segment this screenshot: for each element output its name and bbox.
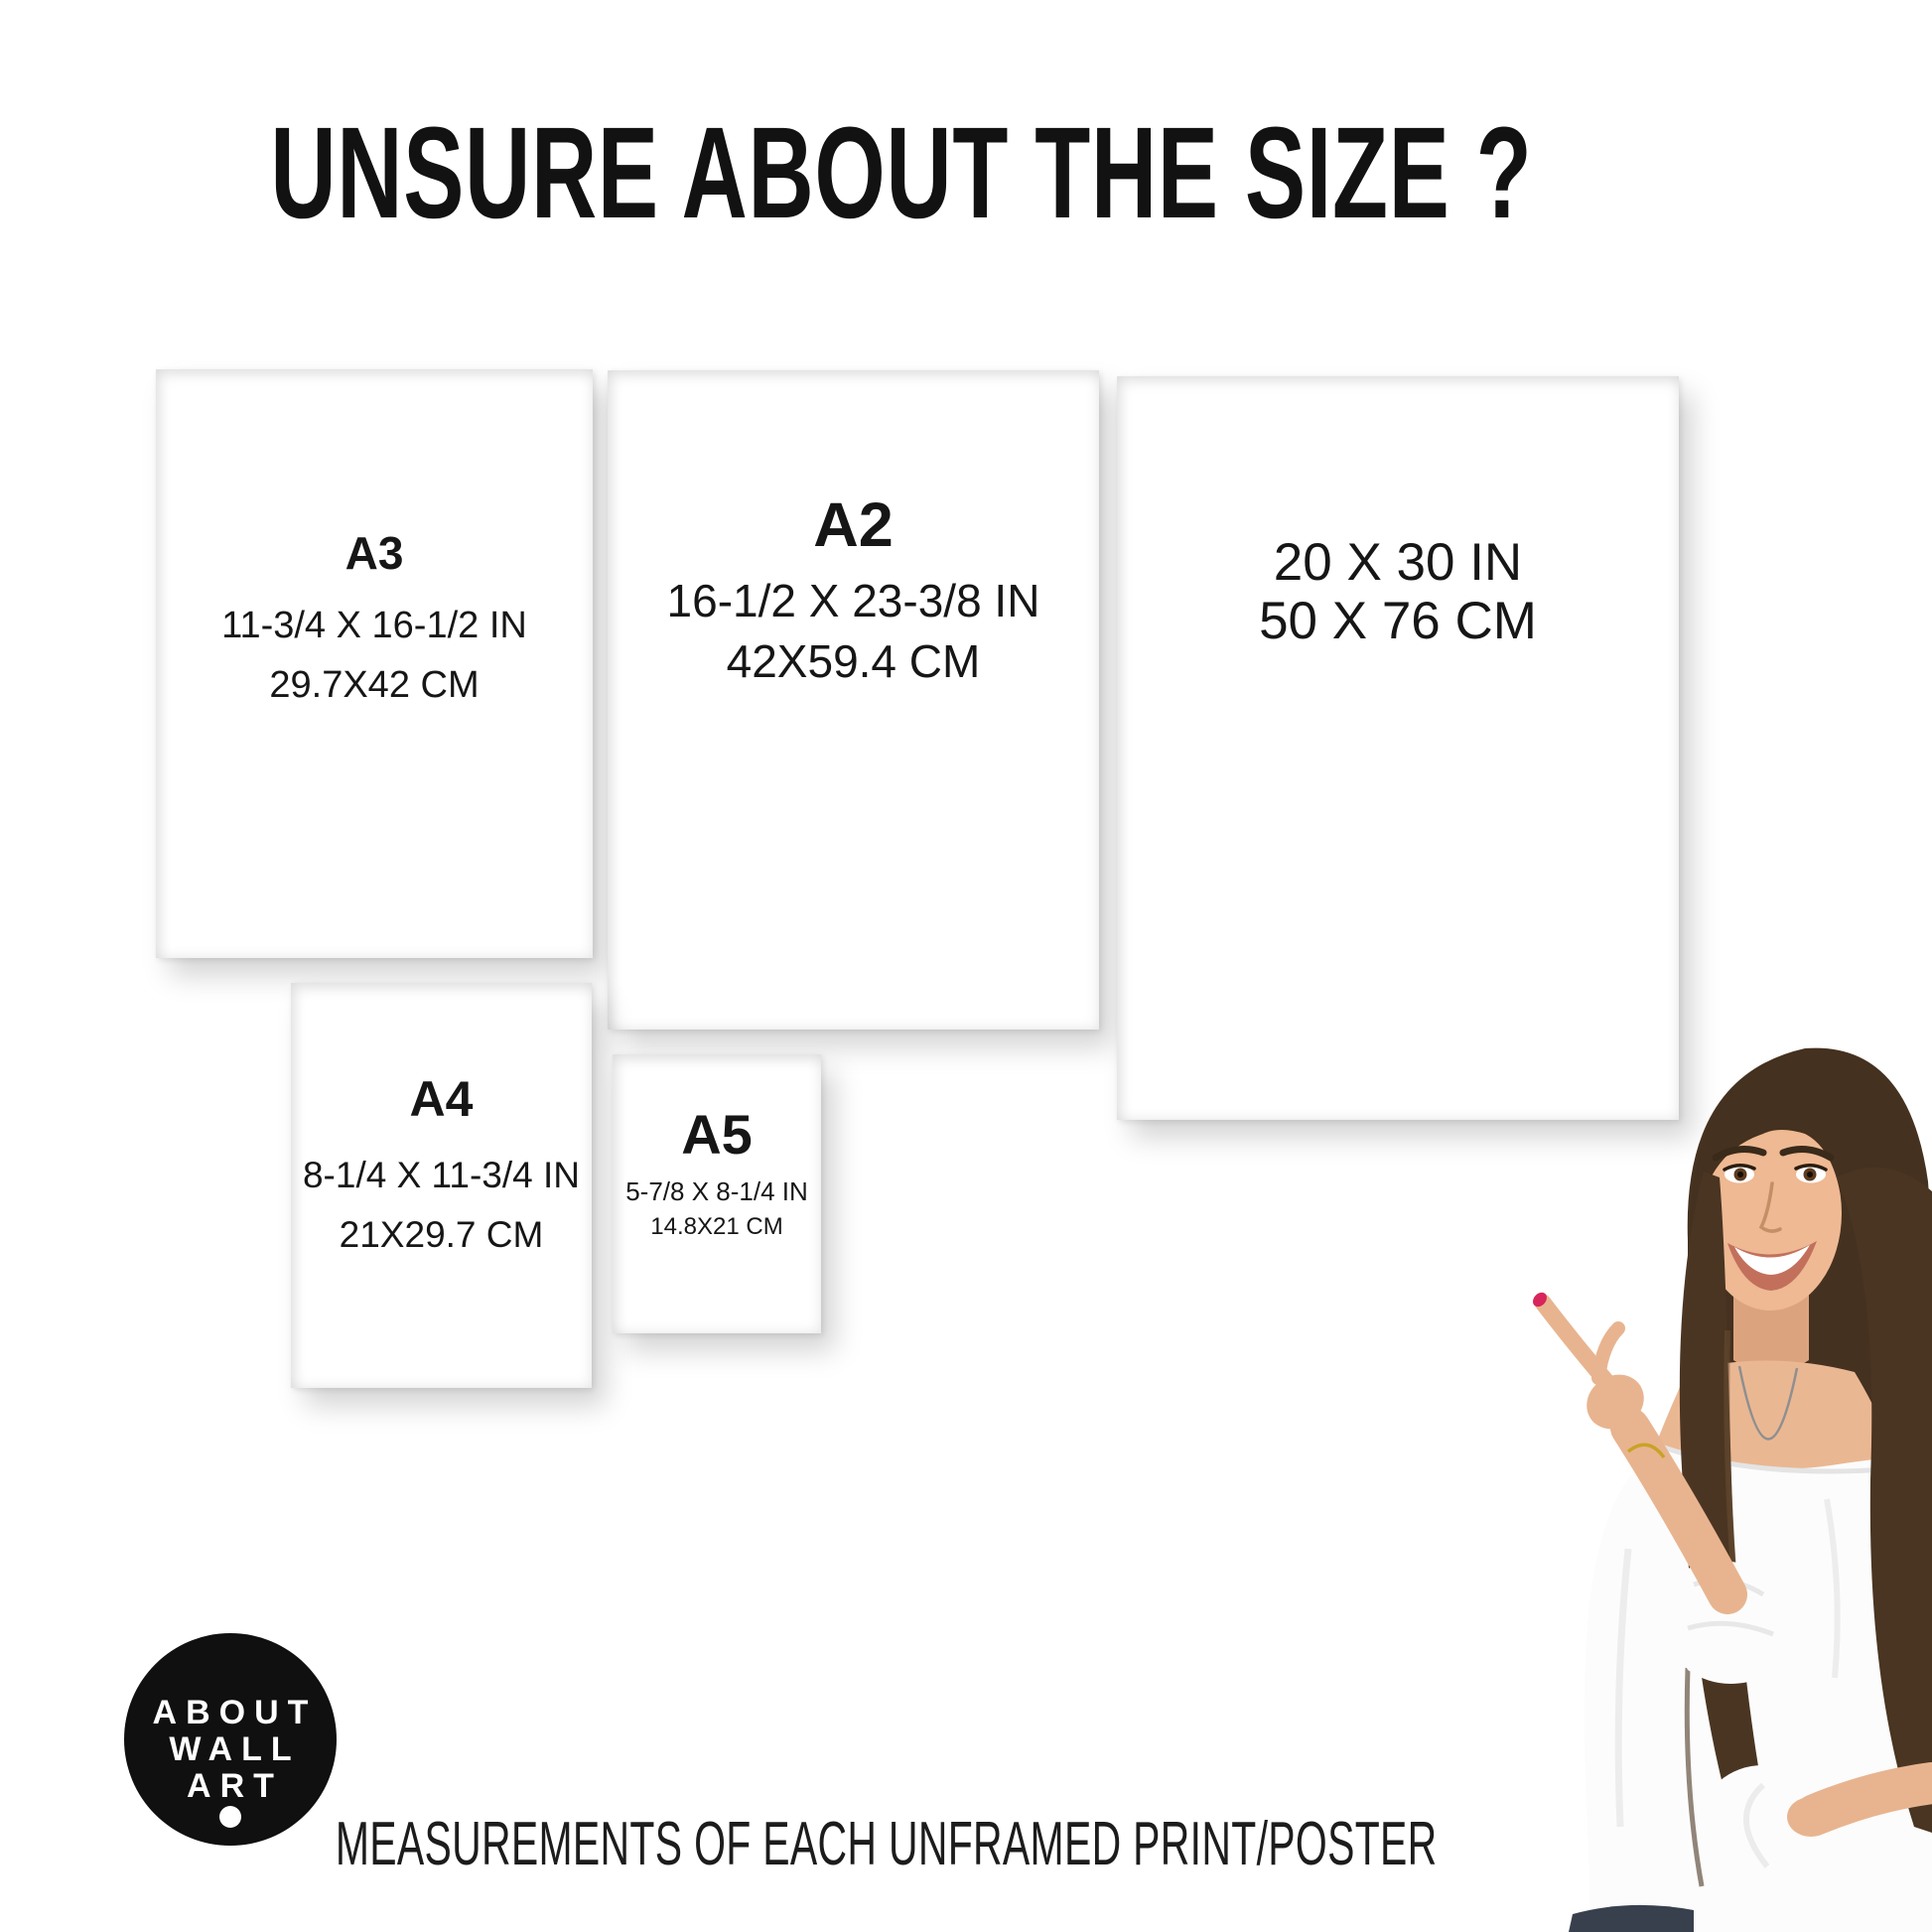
- logo-line-2: WALL: [133, 1731, 337, 1768]
- size-cm: 42X59.4 CM: [608, 631, 1099, 692]
- size-cm: 50 X 76 CM: [1117, 592, 1679, 650]
- frame-20x30-mat: 20 X 30 IN 50 X 76 CM: [1117, 376, 1679, 1120]
- size-cm: 21X29.7 CM: [291, 1205, 592, 1265]
- page-title: UNSURE ABOUT THE SIZE ?: [0, 107, 1698, 237]
- woman-photo: [1132, 1033, 1932, 1932]
- left-eye: [1725, 1166, 1754, 1183]
- size-label: A2: [608, 489, 1099, 561]
- size-label: A4: [291, 1070, 592, 1128]
- size-label: A3: [156, 526, 593, 580]
- frame-a5: A5 5-7/8 X 8-1/4 IN 14.8X21 CM: [613, 1054, 821, 1333]
- frame-a2-mat: A2 16-1/2 X 23-3/8 IN 42X59.4 CM: [608, 370, 1099, 1030]
- size-label: A5: [613, 1102, 821, 1167]
- frame-a2: A2 16-1/2 X 23-3/8 IN 42X59.4 CM: [608, 370, 1099, 1030]
- brand-logo-text: ABOUT WALL ART: [124, 1695, 337, 1805]
- size-inches: 8-1/4 X 11-3/4 IN: [291, 1146, 592, 1205]
- logo-line-3: ART: [133, 1768, 337, 1805]
- page-title-text: UNSURE ABOUT THE SIZE ?: [270, 107, 1532, 237]
- size-inches: 5-7/8 X 8-1/4 IN: [613, 1174, 821, 1209]
- frame-20x30: 20 X 30 IN 50 X 76 CM: [1117, 376, 1679, 1120]
- size-guide-poster: UNSURE ABOUT THE SIZE ? A3 11-3/4 X 16-1…: [0, 0, 1932, 1932]
- woman-figure: [1530, 1048, 1932, 1932]
- size-cm: 29.7X42 CM: [156, 655, 593, 715]
- frame-a3-mat: A3 11-3/4 X 16-1/2 IN 29.7X42 CM: [156, 369, 593, 958]
- frame-a5-mat: A5 5-7/8 X 8-1/4 IN 14.8X21 CM: [613, 1054, 821, 1333]
- size-inches: 16-1/2 X 23-3/8 IN: [608, 571, 1099, 631]
- logo-line-1: ABOUT: [133, 1695, 337, 1731]
- jeans: [1569, 1905, 1694, 1932]
- frame-a3: A3 11-3/4 X 16-1/2 IN 29.7X42 CM: [156, 369, 593, 958]
- right-eye: [1796, 1166, 1826, 1183]
- size-inches: 11-3/4 X 16-1/2 IN: [156, 596, 593, 655]
- frame-a4: A4 8-1/4 X 11-3/4 IN 21X29.7 CM: [291, 983, 592, 1388]
- size-cm: 14.8X21 CM: [613, 1209, 821, 1245]
- frame-a4-mat: A4 8-1/4 X 11-3/4 IN 21X29.7 CM: [291, 983, 592, 1388]
- size-inches: 20 X 30 IN: [1117, 533, 1679, 592]
